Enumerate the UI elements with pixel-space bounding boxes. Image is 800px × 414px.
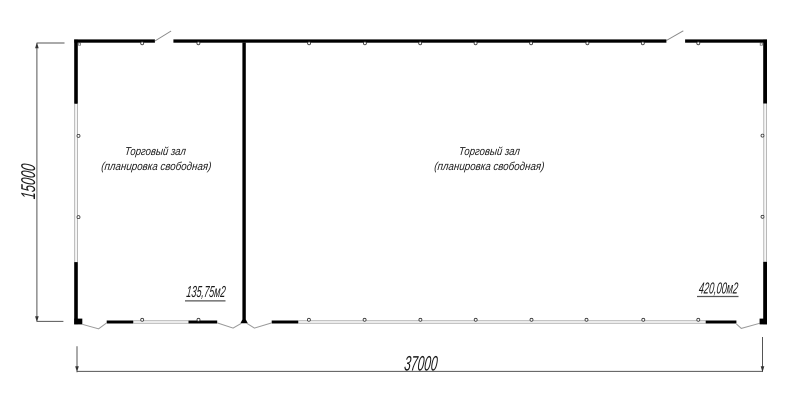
svg-text:37000: 37000 bbox=[403, 352, 439, 375]
svg-text:Торговый зал: Торговый зал bbox=[124, 146, 187, 158]
svg-text:420,00м2: 420,00м2 bbox=[698, 280, 739, 298]
svg-text:Торговый зал: Торговый зал bbox=[458, 146, 521, 158]
svg-text:15000: 15000 bbox=[18, 163, 40, 200]
svg-text:(планировка свободная): (планировка свободная) bbox=[101, 161, 212, 173]
svg-text:135,75м2: 135,75м2 bbox=[186, 283, 227, 301]
svg-text:(планировка свободная): (планировка свободная) bbox=[434, 161, 545, 173]
